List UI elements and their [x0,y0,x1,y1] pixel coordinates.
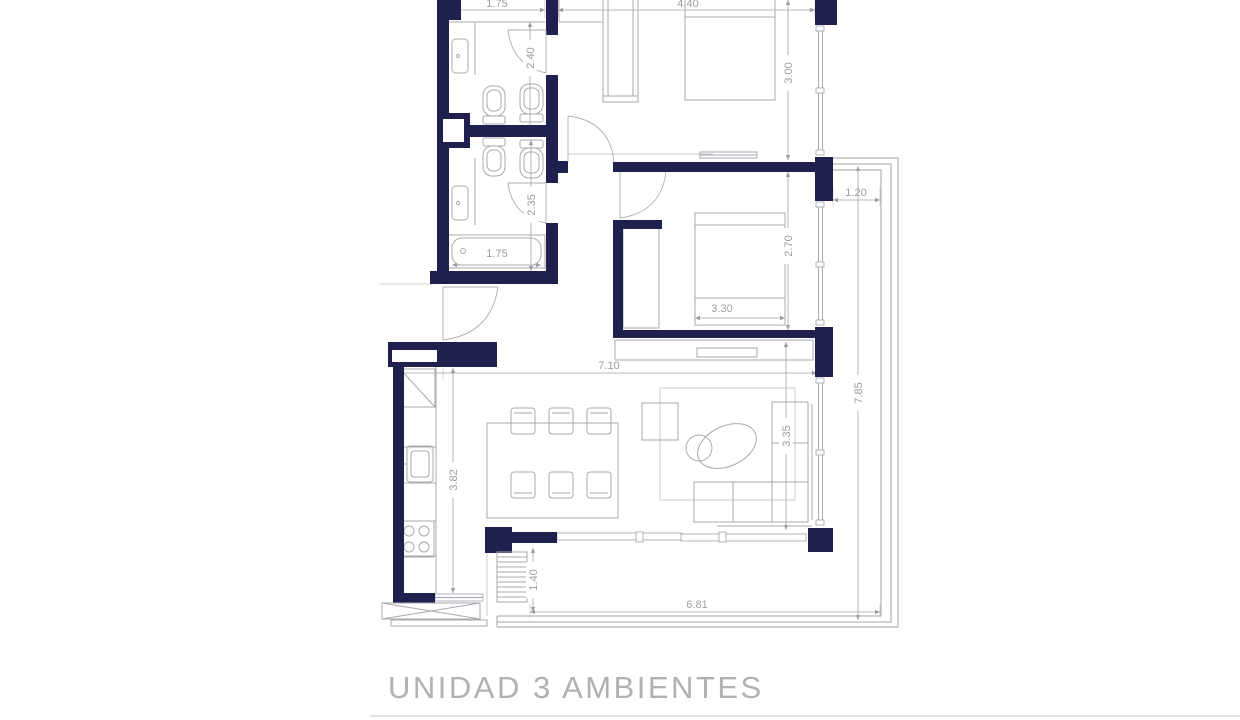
dim-bathroom-top-width: 1.75 [486,0,507,10]
dim-stairs-width: 1.40 [528,569,540,590]
coffee-table [686,415,764,477]
bed-2 [695,213,785,325]
rug [660,388,795,500]
dining-chairs [511,408,611,498]
floor-plan-page: 1.75 4.40 2.40 3.00 1.20 2.35 1.75 2.70 … [0,0,1240,720]
planters [382,603,487,626]
dim-bathroom1-depth: 2.40 [525,47,537,68]
toilet-2 [483,138,505,176]
dim-bedroom2-bed-width: 3.30 [711,303,732,315]
dim-bedroom1-width: 4.40 [677,0,698,10]
dining-area [487,408,618,518]
dim-terrace-length: 6.81 [686,599,707,611]
sliding-door [557,532,806,542]
stairs [487,552,527,616]
bedroom-1 [559,0,775,158]
sink-2 [452,186,468,220]
window-bedroom2 [816,202,824,325]
floor-plan: 1.75 4.40 2.40 3.00 1.20 2.35 1.75 2.70 … [0,0,1240,720]
extension-lines [380,0,880,618]
dim-balcony-side-width: 1.20 [845,187,866,199]
window-living [816,378,824,525]
dim-bathroom2-depth: 2.35 [526,194,538,215]
door-hall [568,116,614,162]
high-window [700,152,757,158]
desk-1 [559,0,603,22]
dim-living-depth: 3.35 [781,425,793,446]
sofa [694,402,812,526]
dimension-labels: 1.75 4.40 2.40 3.00 1.20 2.35 1.75 2.70 … [446,0,867,611]
walls [388,0,837,603]
dim-bathtub-length: 1.75 [486,248,507,260]
door-entry [443,287,498,340]
dim-balcony-length: 7.85 [853,382,865,403]
dim-bedroom1-depth: 3.00 [783,62,795,83]
bed-1 [685,0,775,100]
console-table [615,340,813,360]
dim-bedroom2-depth: 2.70 [783,235,795,256]
bidet-2 [520,140,543,178]
stove [400,521,434,557]
wardrobe-1 [603,0,638,102]
fridge [400,369,435,407]
dimension-lines [398,0,880,620]
door-bedroom2 [620,172,666,218]
dim-living-width: 7.10 [598,360,619,372]
dim-kitchen-length: 3.82 [448,469,460,490]
window-bedroom1 [816,26,824,155]
plan-title: UNIDAD 3 AMBIENTES [388,670,764,705]
toilet-1 [483,86,505,124]
wardrobe-2 [623,228,659,328]
living-area [642,388,812,526]
dining-table [487,423,618,518]
sink-1 [452,39,468,73]
windows [435,26,824,601]
kitchen-window [435,594,483,601]
bidet-1 [520,84,543,122]
